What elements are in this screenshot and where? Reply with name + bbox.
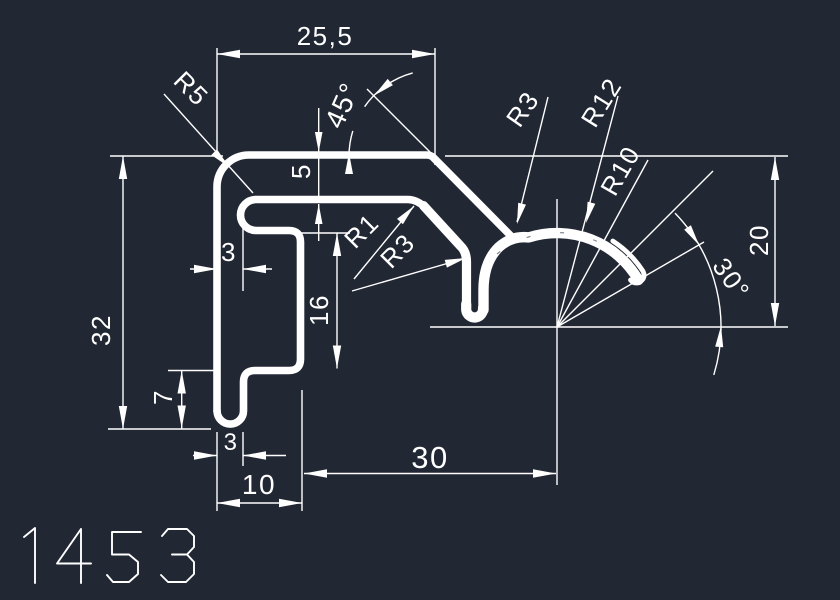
svg-text:3: 3 xyxy=(221,237,237,267)
svg-text:7: 7 xyxy=(148,389,178,405)
svg-text:30: 30 xyxy=(411,440,448,475)
svg-text:25,5: 25,5 xyxy=(297,21,354,51)
svg-text:3: 3 xyxy=(224,429,239,456)
svg-text:10: 10 xyxy=(242,469,276,500)
svg-text:16: 16 xyxy=(304,294,334,326)
svg-text:5: 5 xyxy=(286,163,316,179)
svg-text:20: 20 xyxy=(744,224,774,256)
svg-text:32: 32 xyxy=(86,314,116,346)
